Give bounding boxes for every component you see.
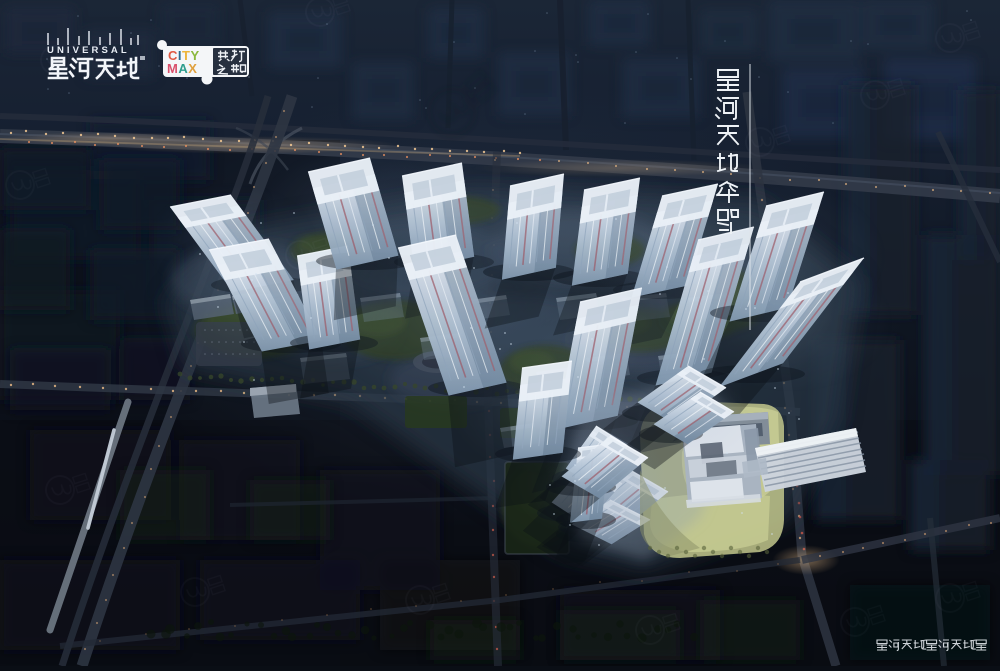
svg-text:UNIVERSAL: UNIVERSAL	[47, 45, 130, 56]
svg-text:MAX: MAX	[167, 61, 197, 76]
